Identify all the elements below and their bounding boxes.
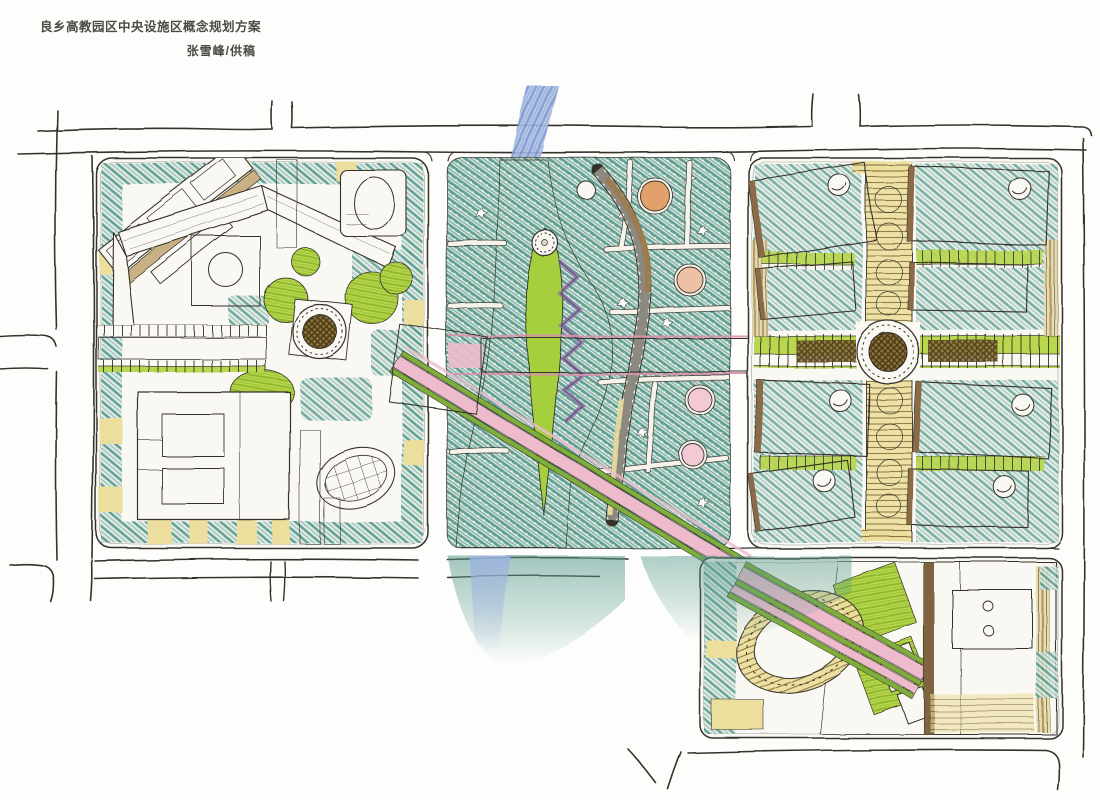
plan-title: 良乡高教园区中央设施区概念规划方案: [40, 16, 256, 35]
northeast-oval-building: [340, 170, 406, 236]
island-pavilion: [532, 230, 558, 256]
left-district-block: [96, 144, 428, 548]
plan-drawing: [0, 0, 1100, 800]
river-upper-reach: [511, 86, 559, 157]
plan-byline: 张雪峰/供稿: [40, 42, 256, 59]
scanned-plan-page: 良乡高教园区中央设施区概念规划方案 张雪峰/供稿: [0, 0, 1100, 800]
south-courtyard-building: [138, 392, 290, 520]
central-circular-plaza: [856, 321, 920, 383]
pavilion-small: [577, 181, 595, 199]
title-block: 良乡高教园区中央设施区概念规划方案 张雪峰/供稿: [40, 16, 256, 59]
campus-block: [748, 158, 1062, 548]
rotunda-building: [293, 305, 347, 359]
